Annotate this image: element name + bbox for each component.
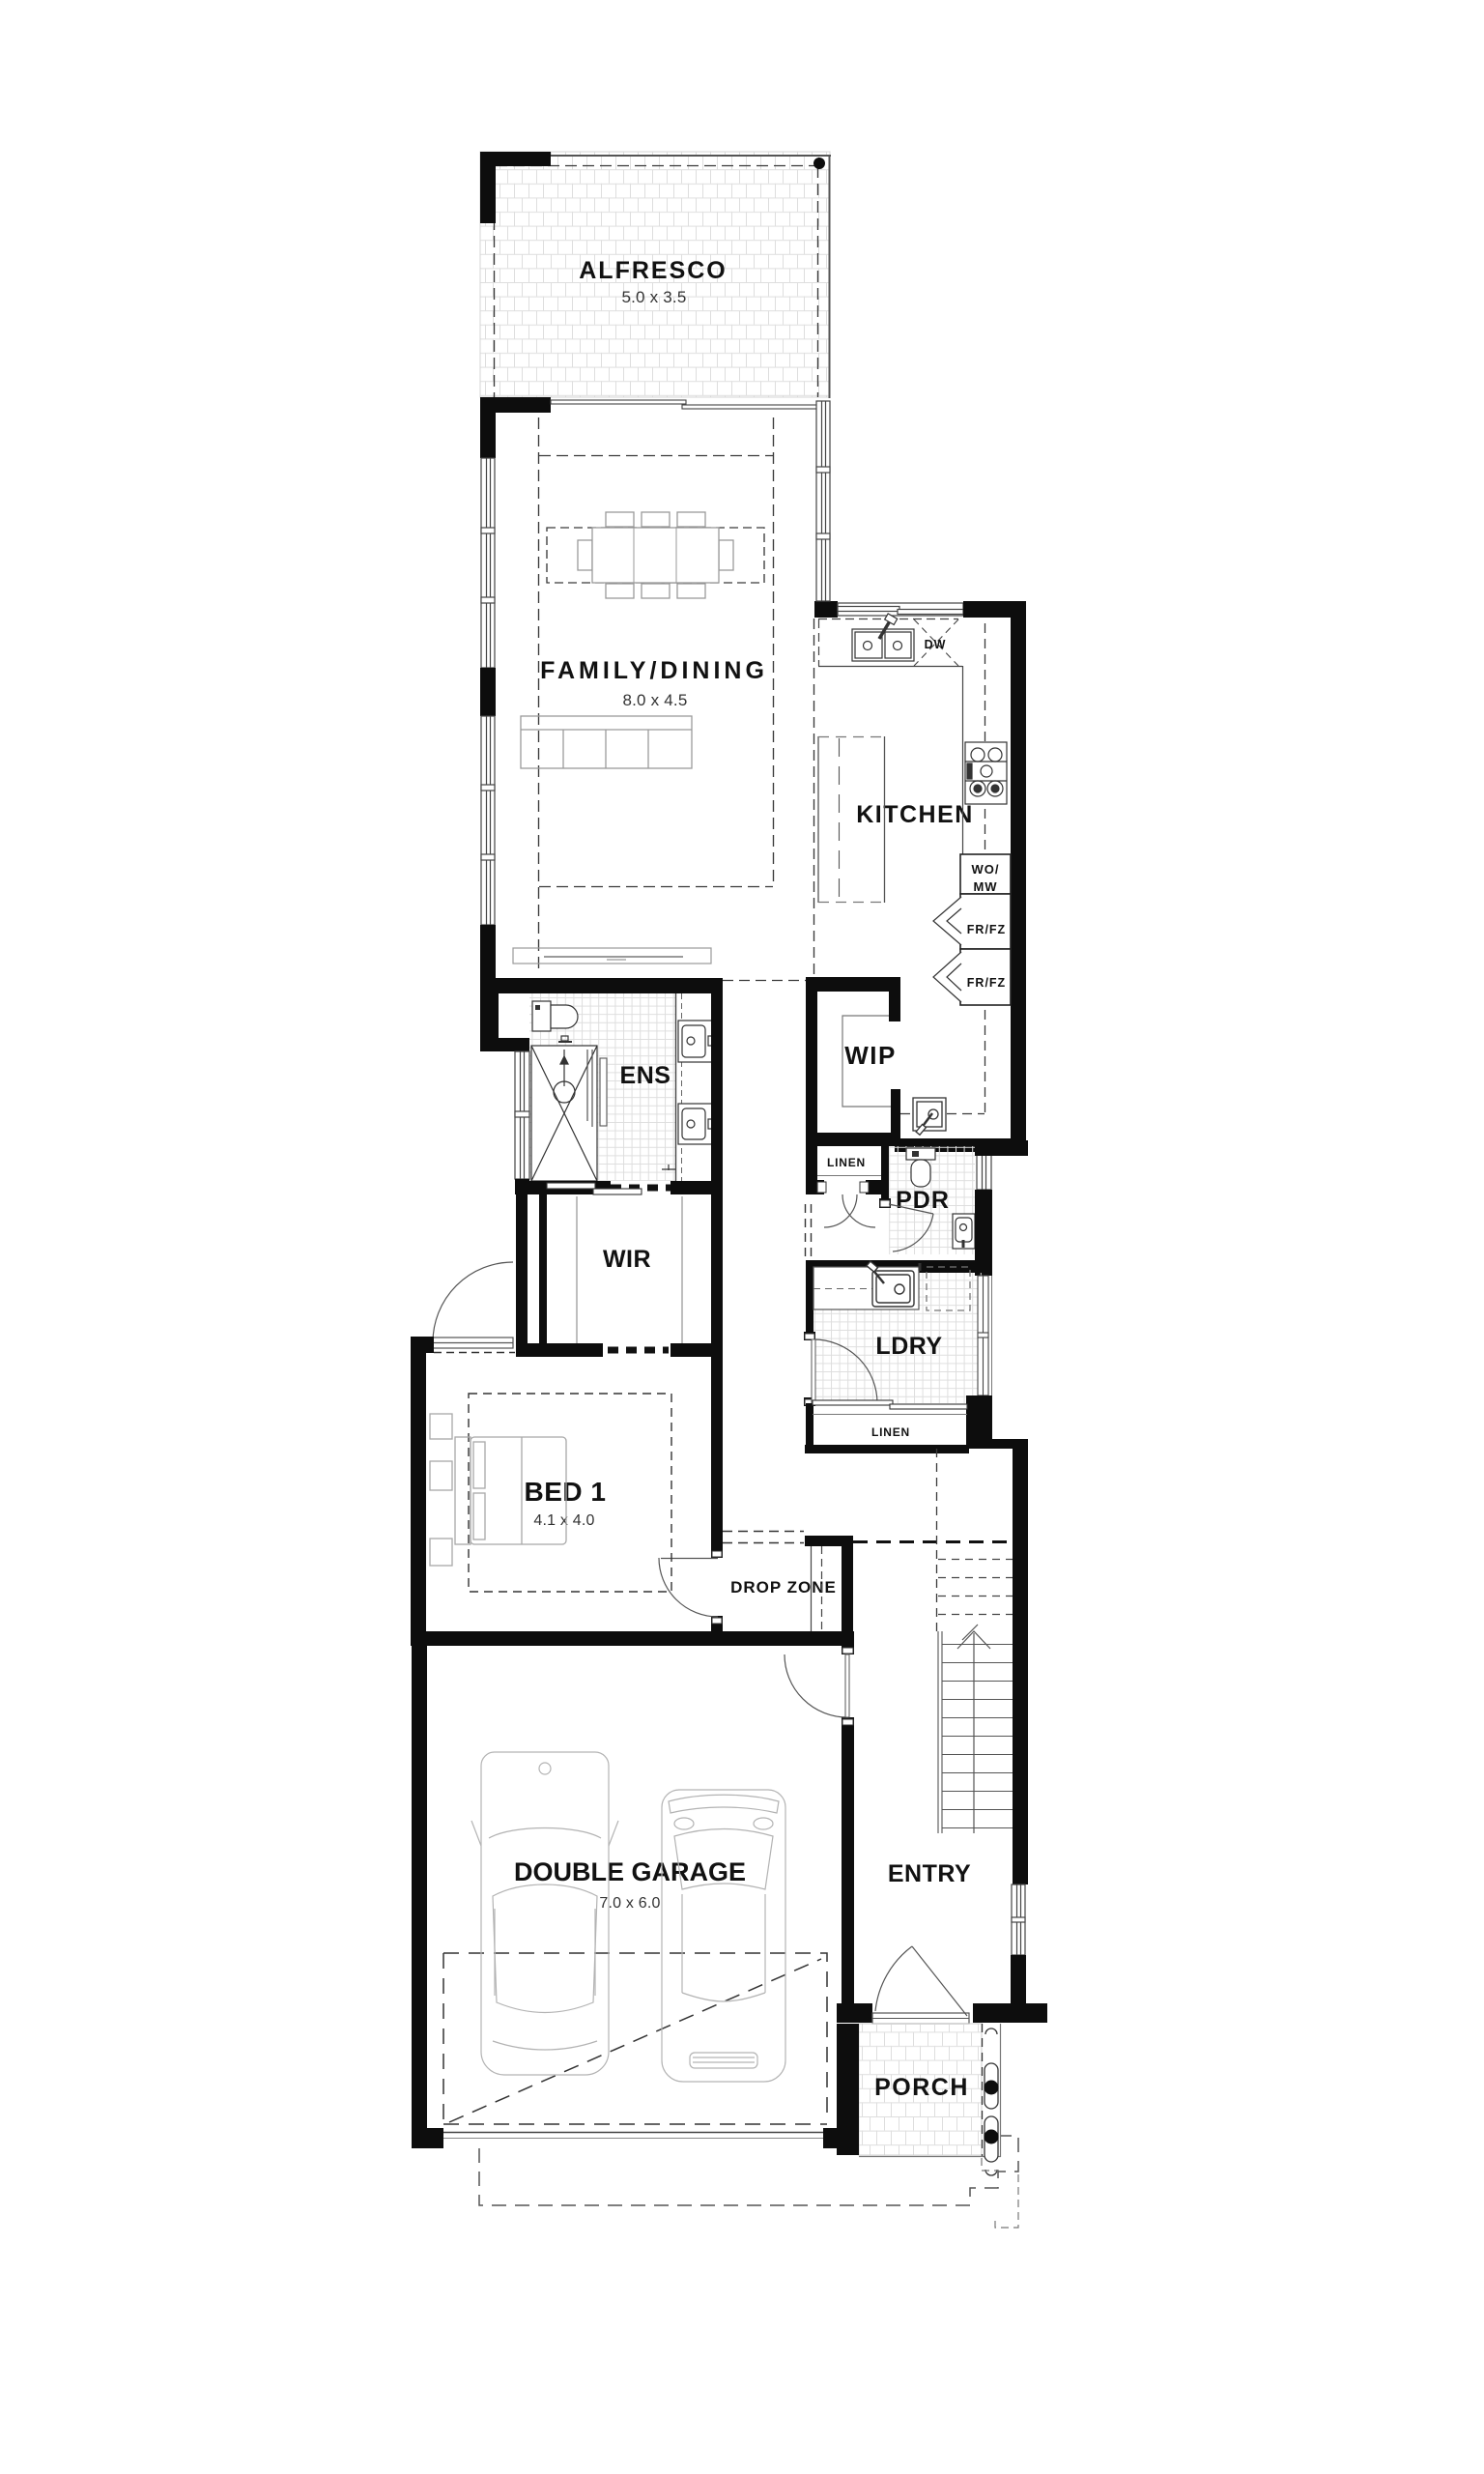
svg-text:WIP: WIP	[844, 1041, 897, 1070]
svg-text:LINEN: LINEN	[827, 1156, 866, 1169]
svg-text:FR/FZ: FR/FZ	[967, 976, 1006, 990]
svg-text:DOUBLE GARAGE: DOUBLE GARAGE	[514, 1857, 746, 1886]
svg-text:LINEN: LINEN	[871, 1425, 910, 1439]
svg-text:LDRY: LDRY	[875, 1333, 942, 1360]
svg-text:DROP ZONE: DROP ZONE	[730, 1578, 837, 1597]
svg-text:DW: DW	[925, 638, 947, 651]
svg-text:FR/FZ: FR/FZ	[967, 923, 1006, 936]
svg-text:KITCHEN: KITCHEN	[856, 801, 974, 828]
svg-text:5.0 x 3.5: 5.0 x 3.5	[621, 288, 686, 306]
svg-text:FAMILY/DINING: FAMILY/DINING	[540, 657, 768, 684]
svg-text:PDR: PDR	[896, 1187, 950, 1214]
svg-text:ENS: ENS	[620, 1062, 671, 1089]
svg-text:8.0 x 4.5: 8.0 x 4.5	[622, 691, 687, 709]
svg-text:ALFRESCO: ALFRESCO	[579, 257, 728, 284]
svg-text:ENTRY: ENTRY	[888, 1860, 971, 1887]
svg-text:WIR: WIR	[603, 1246, 651, 1273]
svg-text:MW: MW	[973, 879, 997, 894]
svg-text:4.1 x 4.0: 4.1 x 4.0	[533, 1512, 594, 1529]
svg-text:WO/: WO/	[972, 862, 1000, 877]
svg-text:BED 1: BED 1	[525, 1477, 607, 1507]
svg-text:PORCH: PORCH	[874, 2074, 969, 2101]
